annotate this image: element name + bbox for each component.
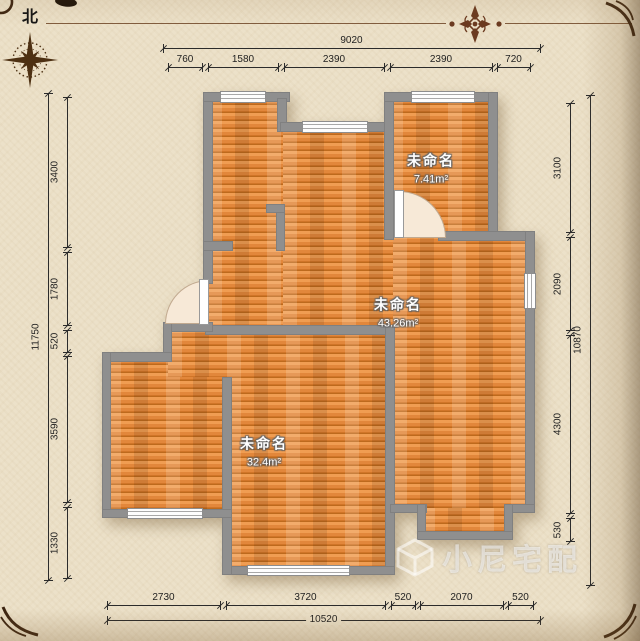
floorplan-page: 北 <box>0 0 640 641</box>
corner-flourishes <box>0 0 640 641</box>
